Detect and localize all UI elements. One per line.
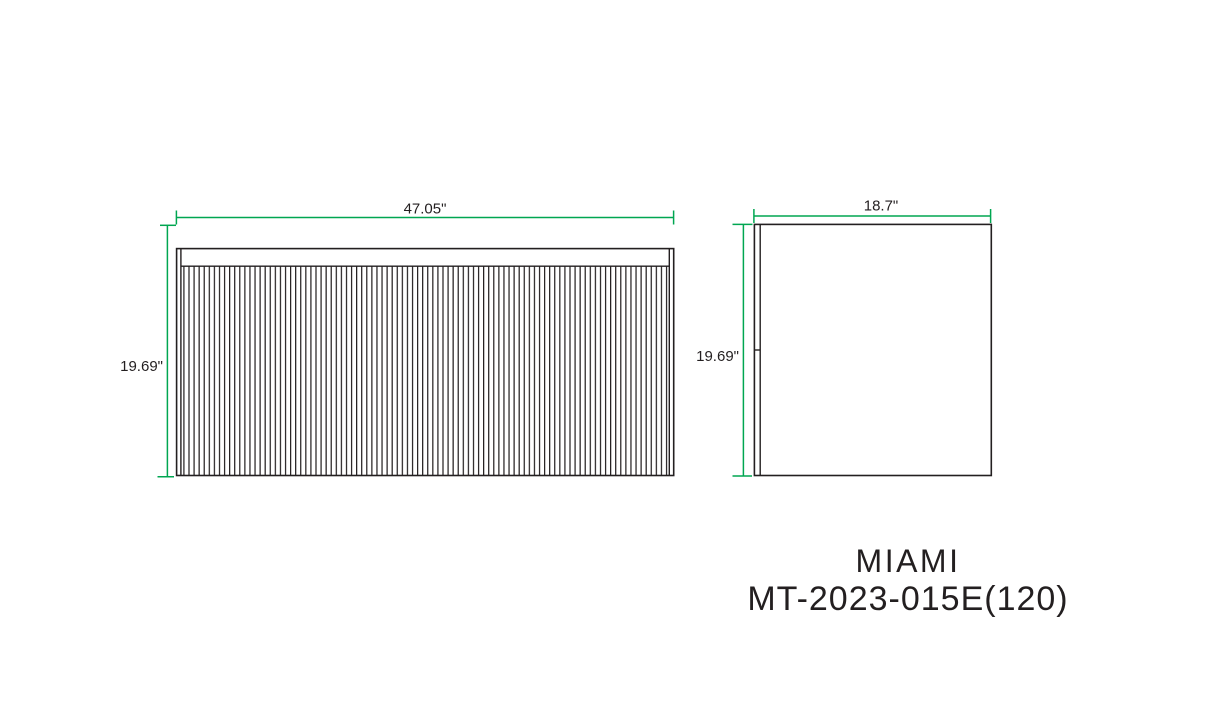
spec-sheet-drawing: 47.05" 19.69" 18.7" 19.69" MIAMI MT-2023… bbox=[0, 0, 1218, 720]
front-width-label: 47.05" bbox=[404, 201, 447, 218]
front-view bbox=[177, 249, 674, 476]
front-height-dimension bbox=[158, 225, 177, 477]
front-fluted-panel bbox=[182, 266, 669, 475]
title-block: MIAMI MT-2023-015E(120) bbox=[657, 544, 1159, 620]
side-view bbox=[754, 224, 991, 475]
product-model-code: MT-2023-015E(120) bbox=[657, 578, 1159, 620]
front-height-label: 19.69" bbox=[120, 358, 163, 375]
side-height-label: 19.69" bbox=[696, 348, 739, 365]
side-view-outline bbox=[754, 224, 991, 475]
side-width-label: 18.7" bbox=[864, 198, 899, 215]
product-series-title: MIAMI bbox=[657, 544, 1159, 578]
